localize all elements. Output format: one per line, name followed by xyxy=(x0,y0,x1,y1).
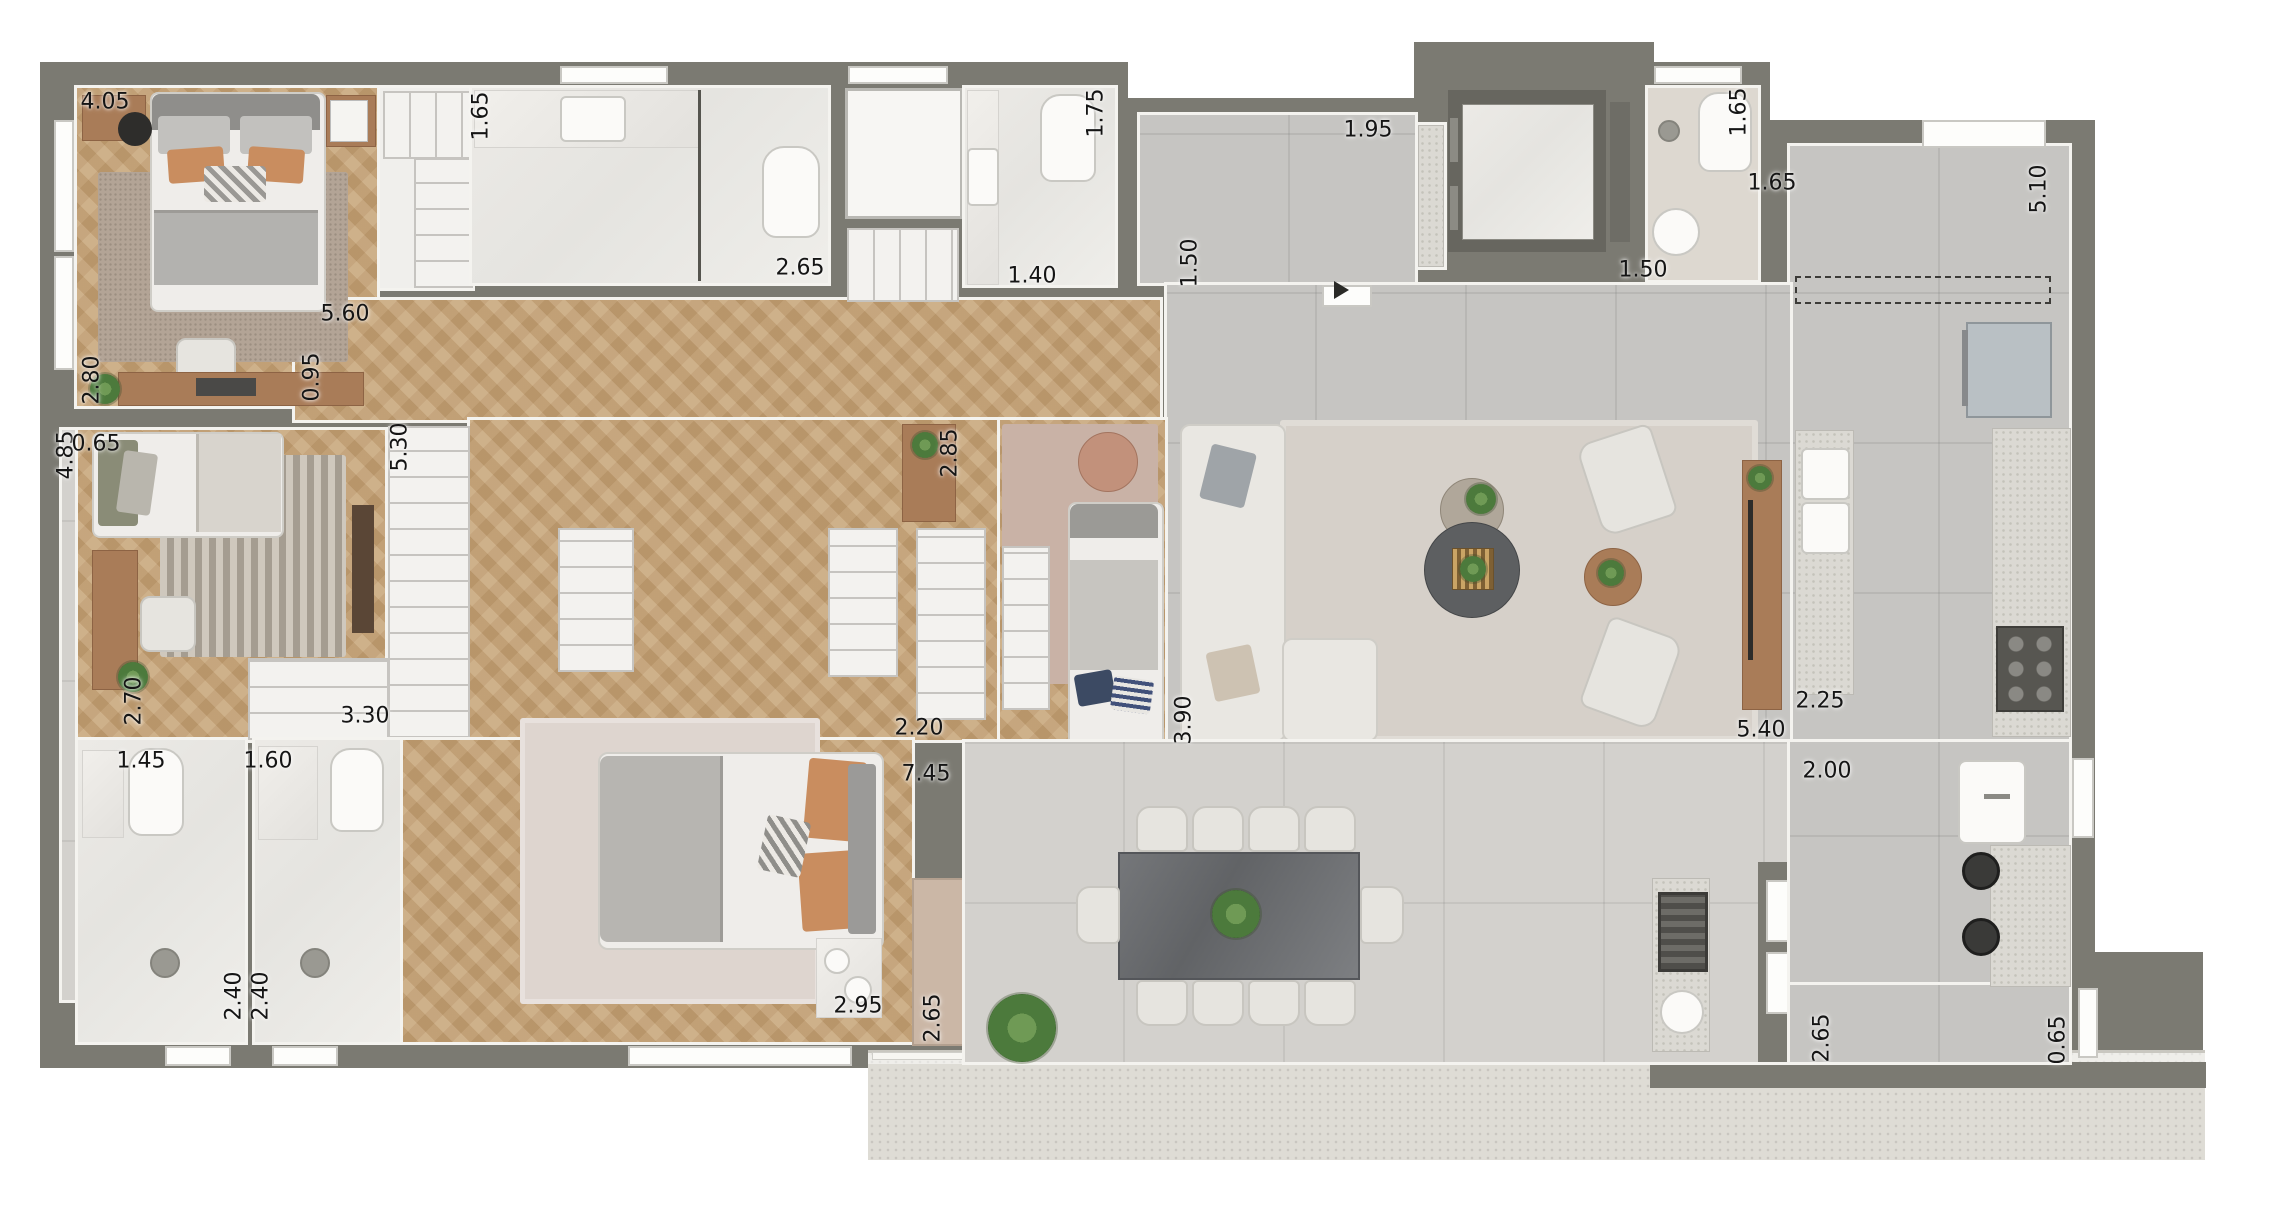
bed-blanket xyxy=(154,210,318,285)
bar-counter-icon xyxy=(1990,845,2071,987)
plant-icon xyxy=(988,994,1056,1062)
dimension-label: 5.60 xyxy=(321,302,370,327)
window-icon xyxy=(54,120,74,252)
shower-drain-icon xyxy=(300,948,330,978)
wall-art xyxy=(330,100,368,142)
shower-drain-icon xyxy=(150,948,180,978)
vessel-sink-icon xyxy=(824,948,850,974)
bed-headboard xyxy=(1070,504,1158,538)
bbq-grill-icon xyxy=(1658,892,1708,972)
dimension-label: 2.25 xyxy=(1796,689,1845,714)
wardrobe-icon xyxy=(558,528,634,672)
elevator-door-track xyxy=(1450,186,1458,230)
dimension-label: 4.05 xyxy=(81,90,130,115)
dimension-label: 2.65 xyxy=(921,994,946,1043)
kitchen-sink-icon xyxy=(1801,502,1850,554)
dimension-label: 2.40 xyxy=(249,972,274,1021)
dining-chair-icon xyxy=(1360,886,1404,944)
dimension-label: 2.20 xyxy=(895,716,944,741)
wardrobe-icon xyxy=(383,91,473,159)
pouf-icon xyxy=(1078,432,1138,492)
bed-blanket xyxy=(1070,560,1158,670)
plant-icon xyxy=(1598,560,1624,586)
wardrobe-icon xyxy=(828,528,898,677)
plant-icon xyxy=(1460,556,1486,582)
window-icon xyxy=(2072,758,2094,838)
toilet-icon xyxy=(762,146,820,238)
plant-icon xyxy=(912,432,938,458)
dimension-label: 0.65 xyxy=(2046,1016,2071,1065)
dimension-label: 1.45 xyxy=(117,749,166,774)
plant-icon xyxy=(1212,890,1260,938)
bar-stool-icon xyxy=(1962,852,2000,890)
dining-chair-icon xyxy=(1304,806,1356,852)
dimension-label: 2.85 xyxy=(938,429,963,478)
window-icon xyxy=(560,66,668,84)
dining-chair-icon xyxy=(1076,886,1120,944)
bar-stool-icon xyxy=(1962,918,2000,956)
dimension-label: 2.65 xyxy=(776,256,825,281)
wall-bottom-gourmet xyxy=(1650,1062,2206,1088)
plant-icon xyxy=(1466,484,1496,514)
dimension-label: 1.65 xyxy=(1748,171,1797,196)
entry-arrow-icon xyxy=(1334,281,1349,299)
dimension-label: 2.65 xyxy=(1810,1014,1835,1063)
window-icon xyxy=(54,256,74,370)
sink-icon xyxy=(967,148,999,206)
dimension-label: 1.65 xyxy=(1727,88,1752,137)
wardrobe-icon xyxy=(388,426,470,738)
dimension-label: 5.10 xyxy=(2027,165,2052,214)
tv-panel-icon xyxy=(352,505,374,633)
pillow-icon xyxy=(848,764,876,934)
fridge-handle xyxy=(1962,330,1968,406)
wardrobe-icon xyxy=(847,228,959,302)
dimension-label: 1.95 xyxy=(1344,118,1393,143)
shower-icon xyxy=(1658,120,1680,142)
plant-icon xyxy=(1748,466,1772,490)
overhead-cabinet-dashed-icon xyxy=(1795,276,2051,304)
window-icon xyxy=(272,1046,338,1066)
lamp-icon xyxy=(118,112,152,146)
pillow-icon xyxy=(1110,675,1154,714)
laundry-tank-icon xyxy=(1958,760,2026,844)
dining-chair-icon xyxy=(1304,980,1356,1026)
elevator-cab xyxy=(1462,104,1594,240)
sink-icon xyxy=(1660,990,1704,1034)
dimension-label: 1.50 xyxy=(1178,239,1203,288)
dimension-label: 3.90 xyxy=(1172,696,1197,745)
window-icon xyxy=(1654,66,1742,84)
tv-icon xyxy=(1748,500,1753,660)
sofa-chaise xyxy=(1282,638,1378,742)
linen-closet xyxy=(845,88,963,219)
elevator-shaft-wall xyxy=(1610,102,1630,242)
office-chair-icon xyxy=(140,596,196,652)
dimension-label: 2.00 xyxy=(1803,759,1852,784)
wardrobe-icon xyxy=(414,158,473,288)
wardrobe-icon xyxy=(1002,546,1050,710)
wardrobe-icon xyxy=(916,528,986,720)
dimension-label: 2.70 xyxy=(122,677,147,726)
toilet-icon xyxy=(330,748,384,832)
dining-chair-icon xyxy=(1248,806,1300,852)
dimension-label: 7.45 xyxy=(902,762,951,787)
sink-icon xyxy=(1652,208,1700,256)
floor-plan: 4.052.801.652.655.600.951.401.751.951.50… xyxy=(0,0,2280,1208)
dining-chair-icon xyxy=(1248,980,1300,1026)
dimension-label: 2.95 xyxy=(834,994,883,1019)
bed-blanket xyxy=(600,756,723,942)
elevator-landing-floor xyxy=(1418,125,1444,267)
cooktop-icon xyxy=(1996,626,2064,712)
sink-icon xyxy=(560,96,626,142)
pillow-icon xyxy=(1205,644,1260,702)
window-icon xyxy=(165,1046,231,1066)
faucet-icon xyxy=(1984,794,2010,799)
window-icon xyxy=(848,66,948,84)
dimension-label: 1.60 xyxy=(244,749,293,774)
pillow-icon xyxy=(204,166,266,202)
window-icon xyxy=(2078,988,2098,1058)
hallway-floor xyxy=(295,300,1160,420)
dimension-label: 2.80 xyxy=(80,356,105,405)
shower-glass-partition xyxy=(698,90,701,281)
dimension-label: 1.40 xyxy=(1008,264,1057,289)
dimension-label: 1.50 xyxy=(1619,258,1668,283)
elevator-door-track xyxy=(1450,118,1458,162)
dimension-label: 2.40 xyxy=(222,972,247,1021)
kitchen-service-door xyxy=(1922,120,2046,148)
window-icon xyxy=(628,1046,852,1066)
dimension-label: 1.65 xyxy=(469,92,494,141)
dimension-label: 0.65 xyxy=(72,432,121,457)
dimension-label: 3.30 xyxy=(341,704,390,729)
dimension-label: 5.40 xyxy=(1737,718,1786,743)
dining-chair-icon xyxy=(1136,806,1188,852)
dining-chair-icon xyxy=(1192,806,1244,852)
kitchen-sink-icon xyxy=(1801,448,1850,500)
bed-blanket xyxy=(196,434,281,532)
dining-chair-icon xyxy=(1136,980,1188,1026)
outside-notch xyxy=(1128,20,1414,98)
fridge-icon xyxy=(1966,322,2052,418)
laptop-icon xyxy=(196,378,256,396)
dimension-label: 0.95 xyxy=(300,353,325,402)
dimension-label: 1.75 xyxy=(1084,89,1109,138)
dimension-label: 5.30 xyxy=(388,423,413,472)
dining-chair-icon xyxy=(1192,980,1244,1026)
